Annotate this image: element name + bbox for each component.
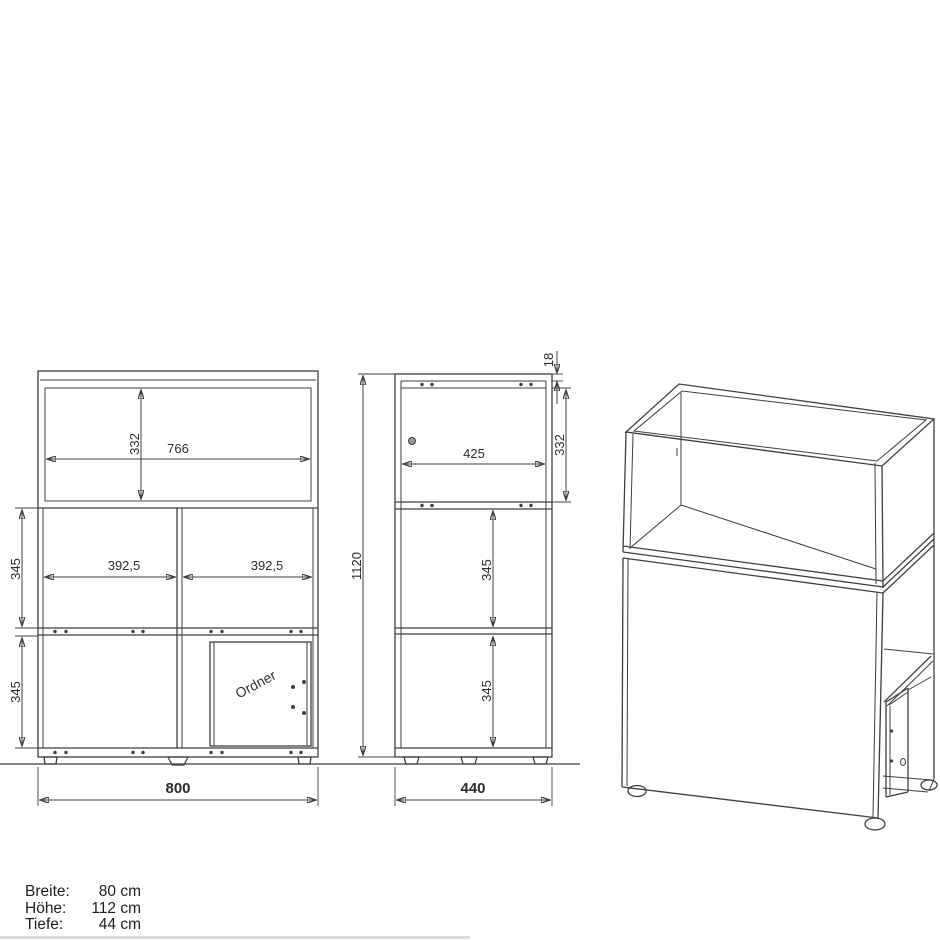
ordner-door: Ordner (210, 642, 311, 746)
legend-value-hoehe: 112 cm (89, 901, 141, 918)
front-dimensions: 332 766 392,5 392,5 345 345 800 (8, 390, 318, 806)
dim-front-800: 800 (165, 780, 190, 797)
side-shelf-screw-dots (420, 504, 532, 507)
dim-side-1120: 1120 (349, 552, 364, 580)
dim-side-345-bottom: 345 (479, 680, 494, 702)
side-view-feet (404, 757, 548, 764)
legend-row-tiefe: Tiefe: 44 cm (25, 917, 141, 934)
legend-value-tiefe: 44 cm (89, 917, 141, 934)
shelf-screw-dots (53, 630, 302, 633)
dim-side-345-top: 345 (479, 559, 494, 581)
door-label: Ordner (233, 667, 279, 702)
cam-lock-hole (409, 438, 416, 445)
legend-label-breite: Breite: (25, 884, 89, 901)
legend-value-breite: 80 cm (89, 884, 141, 901)
perspective-feet (628, 780, 937, 830)
dim-front-332: 332 (127, 433, 142, 455)
front-view: Ordner 332 766 392,5 392,5 345 (8, 371, 318, 806)
side-view: 18 332 425 345 345 1120 440 (349, 351, 571, 806)
photo-bottom-edge (0, 936, 470, 939)
legend-label-tiefe: Tiefe: (25, 917, 89, 934)
legend-row-hoehe: Höhe: 112 cm (25, 901, 141, 918)
dim-front-766: 766 (167, 441, 189, 456)
binder (886, 688, 908, 797)
side-top-screw-dots (420, 383, 532, 386)
dim-side-425: 425 (463, 446, 485, 461)
perspective-view (622, 384, 937, 830)
dim-front-345-bottom: 345 (8, 681, 23, 703)
dim-side-440: 440 (460, 780, 485, 797)
dim-front-392-right: 392,5 (251, 558, 284, 573)
dim-side-18: 18 (541, 353, 556, 367)
dim-side-332: 332 (552, 434, 567, 456)
binder-ring-hole (901, 759, 906, 766)
legend-row-breite: Breite: 80 cm (25, 884, 141, 901)
cabinet-dimension-drawing: Ordner 332 766 392,5 392,5 345 (0, 0, 940, 940)
bottom-screw-dots (53, 751, 302, 754)
door-hole-dots (291, 680, 306, 715)
dimension-legend: Breite: 80 cm Höhe: 112 cm Tiefe: 44 cm (25, 884, 141, 934)
side-dimensions: 18 332 425 345 345 1120 440 (349, 351, 571, 806)
dim-front-345-top: 345 (8, 558, 23, 580)
legend-label-hoehe: Höhe: (25, 901, 89, 918)
technical-drawing-page: { "colors": {"line": "#3f3f3f", "backgro… (0, 0, 940, 940)
side-compartment (883, 649, 934, 797)
dim-front-392-left: 392,5 (108, 558, 141, 573)
